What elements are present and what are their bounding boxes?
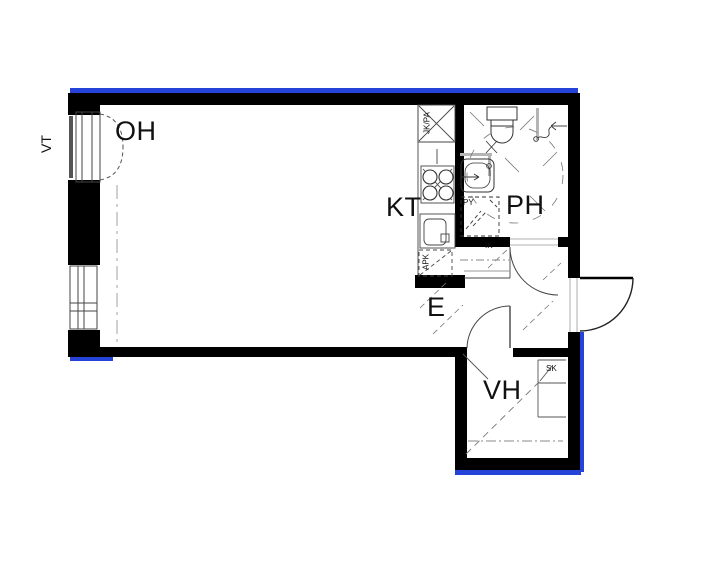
marker-cleaning-cupboard: SK — [546, 364, 557, 373]
marker-laundry: PY — [463, 198, 474, 207]
entry-door — [570, 278, 633, 332]
closet-door — [467, 306, 510, 348]
entry-closet-icon — [460, 247, 510, 278]
washbasin-icon — [460, 153, 494, 192]
room-label-kitchen: KT — [386, 192, 422, 223]
room-label-living: OH — [115, 116, 157, 147]
marker-dishwasher: APK — [422, 254, 431, 270]
marker-fridge-freezer: JK/PA — [423, 112, 432, 134]
stove-icon — [421, 166, 454, 203]
symbol-layer — [0, 0, 727, 573]
floor-plan: OH KT PH E VH VT JK/PA APK PY IK SK — [0, 0, 727, 573]
room-label-bathroom: PH — [506, 190, 545, 221]
bathroom-door — [510, 239, 558, 295]
marker-balcony-door: VT — [38, 135, 54, 153]
room-label-entry: E — [427, 292, 446, 323]
toilet-icon — [486, 107, 517, 153]
sink-icon — [420, 214, 455, 248]
window-icon — [70, 266, 97, 329]
room-label-closet: VH — [483, 375, 522, 406]
marker-entry-closet: IK — [485, 241, 493, 250]
